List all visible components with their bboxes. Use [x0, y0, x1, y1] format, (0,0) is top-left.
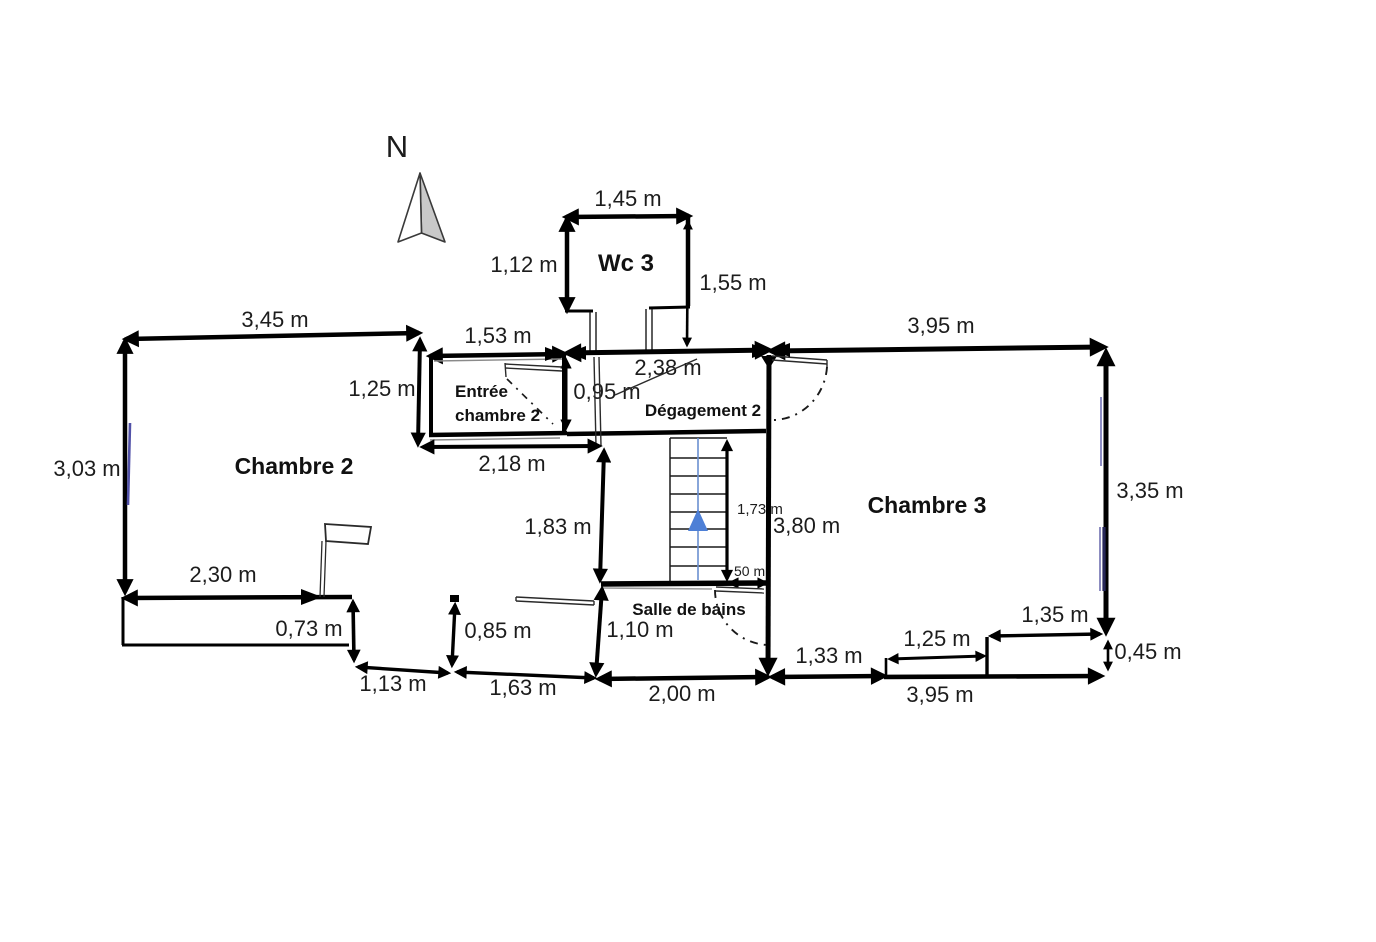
svg-text:1,25 m: 1,25 m: [903, 626, 970, 651]
svg-text:0,45 m: 0,45 m: [1114, 639, 1181, 664]
svg-text:3,95 m: 3,95 m: [906, 682, 973, 707]
svg-text:3,80 m: 3,80 m: [773, 513, 840, 538]
svg-text:1,83 m: 1,83 m: [524, 514, 591, 539]
svg-text:0,73 m: 0,73 m: [275, 616, 342, 641]
svg-text:2,38 m: 2,38 m: [634, 355, 701, 380]
svg-text:1,63 m: 1,63 m: [489, 675, 556, 700]
svg-text:1,25 m: 1,25 m: [348, 376, 415, 401]
svg-text:3,03 m: 3,03 m: [53, 456, 120, 481]
svg-text:1,35 m: 1,35 m: [1021, 602, 1088, 627]
svg-text:Salle de bains: Salle de bains: [632, 600, 745, 619]
svg-text:Chambre 3: Chambre 3: [868, 492, 987, 518]
svg-text:chambre 2: chambre 2: [455, 406, 540, 425]
svg-text:Chambre 2: Chambre 2: [235, 453, 354, 479]
svg-text:2,00 m: 2,00 m: [648, 681, 715, 706]
svg-text:1,12 m: 1,12 m: [490, 252, 557, 277]
svg-text:0,85 m: 0,85 m: [464, 618, 531, 643]
svg-text:1,55 m: 1,55 m: [699, 270, 766, 295]
svg-text:1,53 m: 1,53 m: [464, 323, 531, 348]
svg-text:N: N: [386, 129, 408, 164]
svg-text:Dégagement 2: Dégagement 2: [645, 401, 761, 420]
svg-text:2,18 m: 2,18 m: [478, 451, 545, 476]
svg-text:1,45 m: 1,45 m: [594, 186, 661, 211]
svg-text:1,33 m: 1,33 m: [795, 643, 862, 668]
svg-text:0,95 m: 0,95 m: [573, 379, 640, 404]
svg-text:50 m: 50 m: [734, 563, 765, 579]
svg-text:Wc 3: Wc 3: [598, 250, 654, 277]
svg-text:3,95 m: 3,95 m: [907, 313, 974, 338]
svg-text:2,30 m: 2,30 m: [189, 562, 256, 587]
svg-text:Entrée: Entrée: [455, 382, 508, 401]
svg-text:3,45 m: 3,45 m: [241, 307, 308, 332]
svg-text:3,35 m: 3,35 m: [1116, 478, 1183, 503]
svg-text:1,13 m: 1,13 m: [359, 671, 426, 696]
svg-text:1,10 m: 1,10 m: [606, 617, 673, 642]
